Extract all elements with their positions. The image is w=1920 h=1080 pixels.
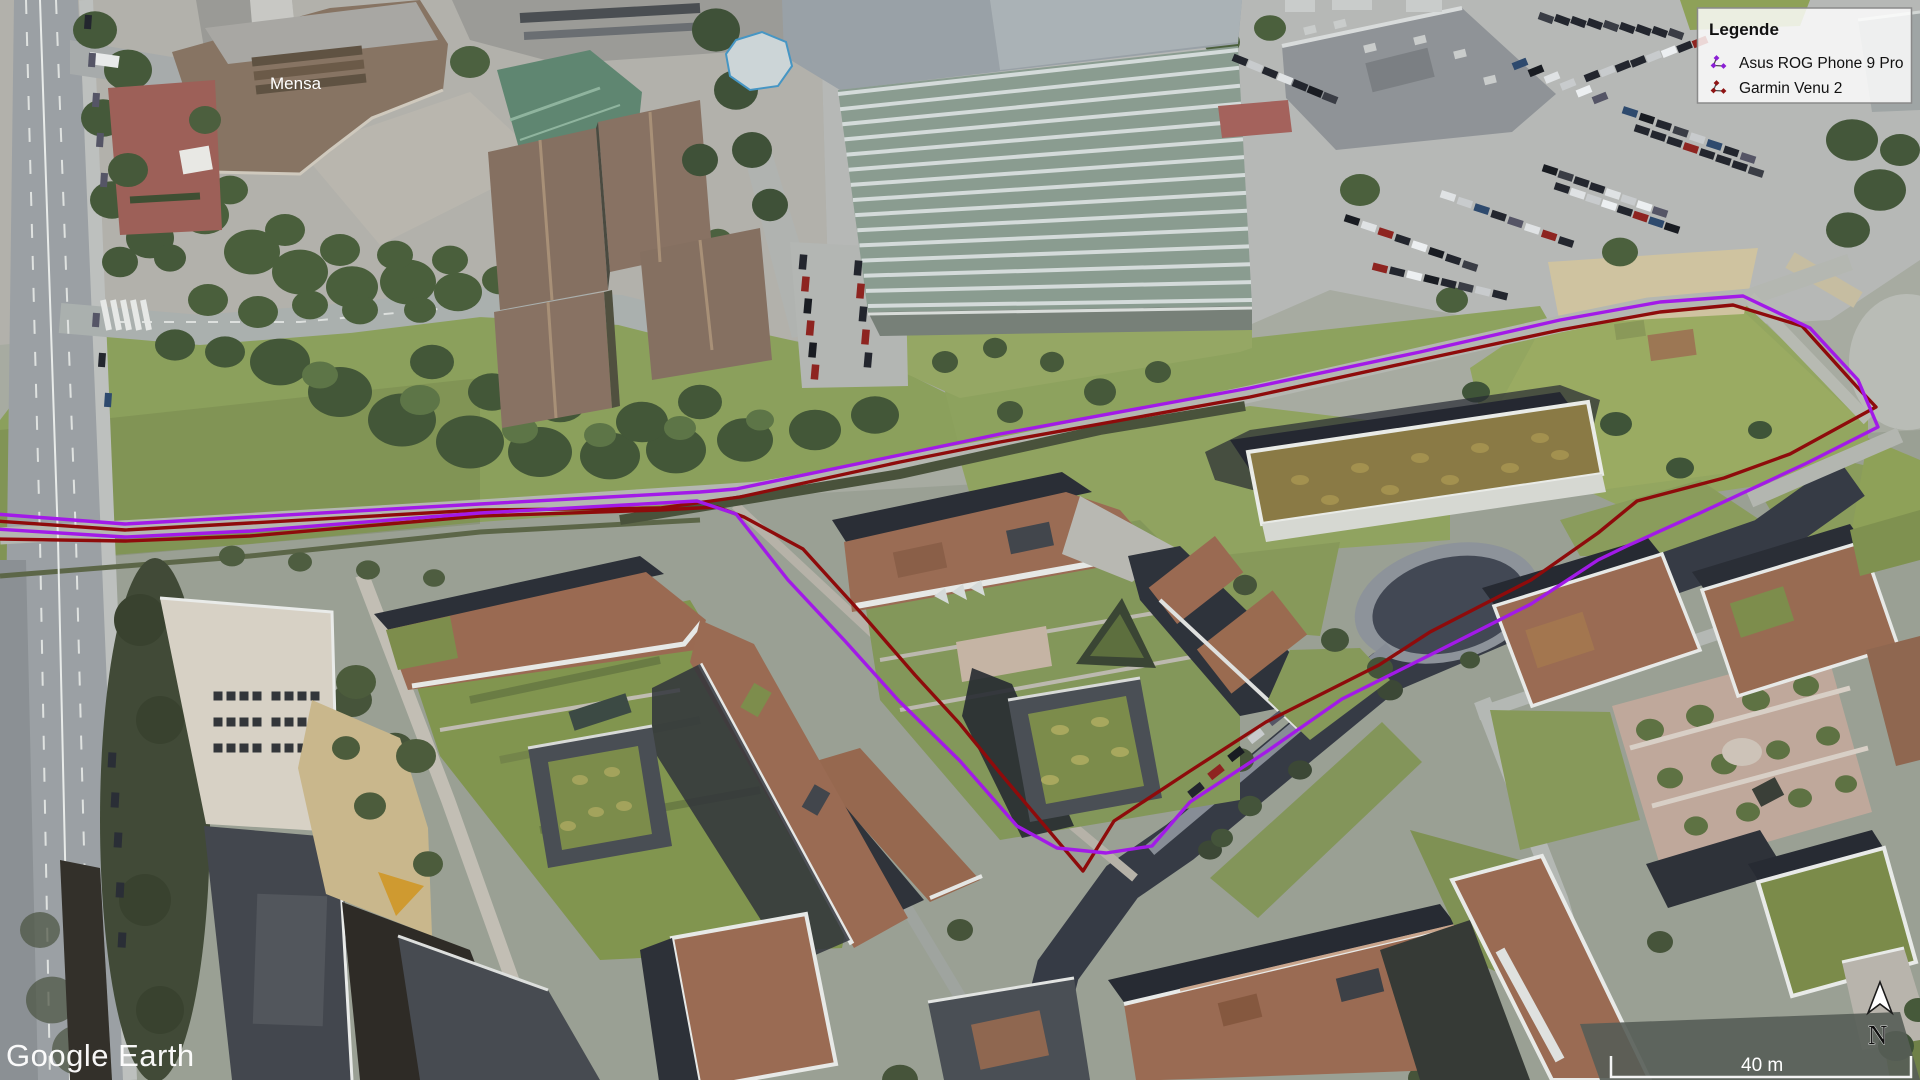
svg-text:Garmin Venu 2: Garmin Venu 2 xyxy=(1739,80,1842,97)
svg-text:Mensa: Mensa xyxy=(270,74,322,93)
svg-text:N: N xyxy=(1868,1020,1888,1050)
svg-text:Legende: Legende xyxy=(1709,20,1779,39)
svg-text:Google Earth: Google Earth xyxy=(6,1038,195,1073)
svg-text:40 m: 40 m xyxy=(1741,1055,1783,1076)
svg-text:Asus ROG Phone 9 Pro: Asus ROG Phone 9 Pro xyxy=(1739,55,1904,72)
